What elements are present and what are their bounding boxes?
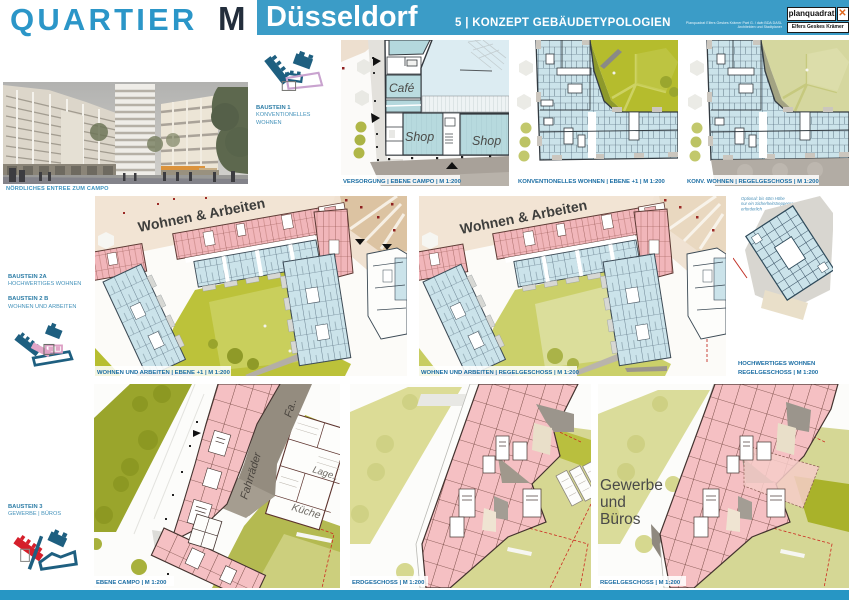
svg-text:Gewerbe: Gewerbe — [600, 477, 663, 494]
svg-text:ERDGESCHOSS | M 1:200: ERDGESCHOSS | M 1:200 — [352, 580, 425, 586]
svg-text:erforderlich: erforderlich — [741, 206, 763, 211]
svg-text:Shop: Shop — [405, 130, 434, 144]
svg-text:KONV. WOHNEN | REGELGESCHOSS |: KONV. WOHNEN | REGELGESCHOSS | M 1:200 — [687, 179, 819, 185]
svg-text:VERSORGUNG | EBENE CAMPO | M 1: VERSORGUNG | EBENE CAMPO | M 1:200 — [343, 179, 462, 185]
svg-text:Café: Café — [389, 81, 415, 95]
svg-text:WOHNEN UND ARBEITEN | EBENE +1: WOHNEN UND ARBEITEN | EBENE +1 | M 1:200 — [97, 370, 231, 376]
svg-text:HOCHWERTIGES WOHNEN: HOCHWERTIGES WOHNEN — [738, 361, 815, 367]
svg-text:KONVENTIONELLES WOHNEN | EBENE: KONVENTIONELLES WOHNEN | EBENE +1 | M 1:… — [518, 179, 666, 185]
svg-text:REGELGESCHOSS | M 1:200: REGELGESCHOSS | M 1:200 — [600, 580, 681, 586]
svg-text:REGELGESCHOSS | M 1:200: REGELGESCHOSS | M 1:200 — [738, 370, 819, 376]
svg-text:Büros: Büros — [600, 511, 641, 528]
svg-text:und: und — [600, 494, 626, 511]
svg-text:EBENE CAMPO | M 1:200: EBENE CAMPO | M 1:200 — [96, 580, 167, 586]
svg-text:WOHNEN UND ARBEITEN | REGELGES: WOHNEN UND ARBEITEN | REGELGESCHOSS | M … — [421, 370, 580, 376]
svg-text:Shop: Shop — [472, 134, 501, 148]
